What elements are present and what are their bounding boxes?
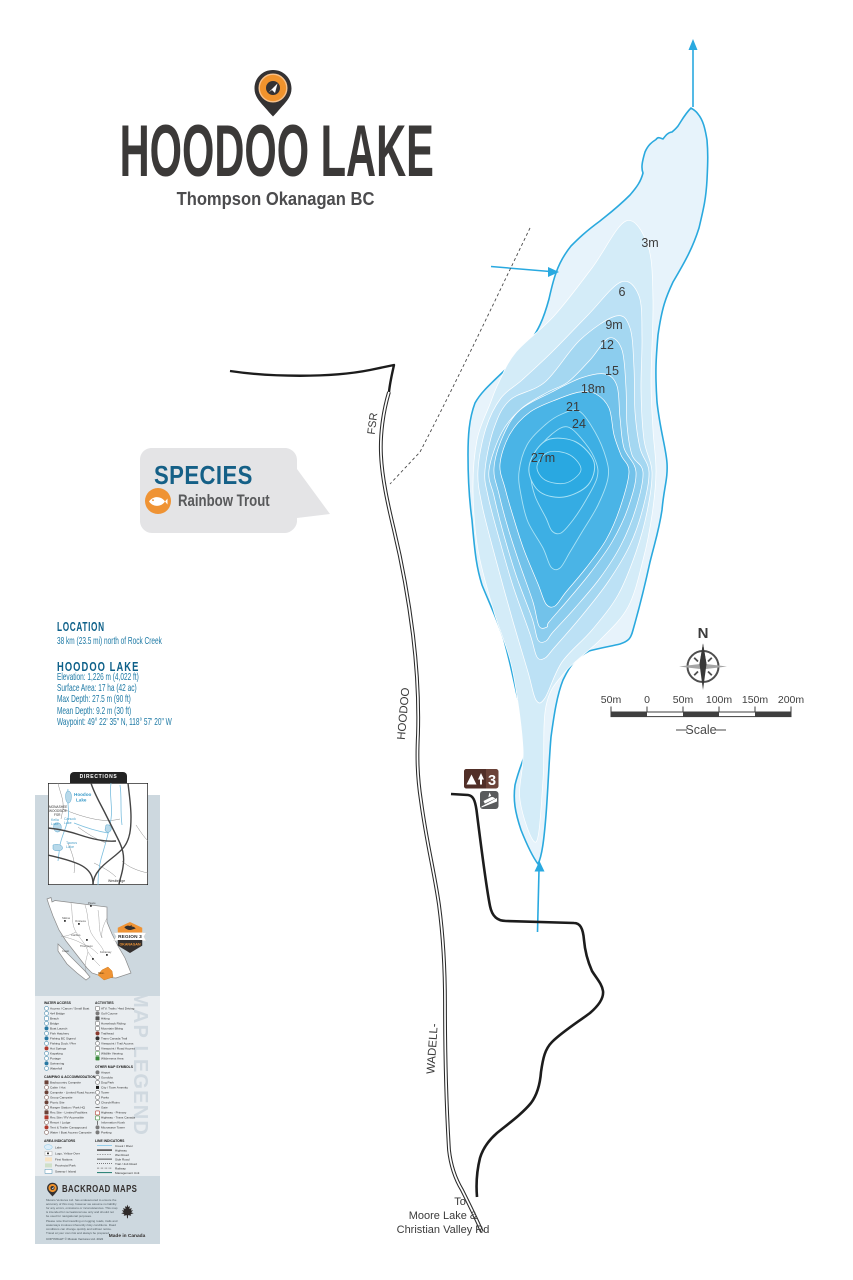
svg-text:Fish Hatchery: Fish Hatchery xyxy=(50,1032,70,1036)
svg-text:0: 0 xyxy=(644,694,650,706)
svg-text:Travel at your own risk and al: Travel at your own risk and always be pr… xyxy=(46,1231,110,1235)
svg-text:12: 12 xyxy=(600,338,614,352)
svg-text:Fishing Dock / Pier: Fishing Dock / Pier xyxy=(50,1042,76,1046)
svg-text:Lake: Lake xyxy=(66,845,74,849)
svg-text:Cabin / Hut: Cabin / Hut xyxy=(50,1086,66,1090)
svg-text:ACTIVITIES: ACTIVITIES xyxy=(95,1001,114,1005)
svg-text:21: 21 xyxy=(566,400,580,414)
svg-text:Wildlife Viewing: Wildlife Viewing xyxy=(101,1052,123,1056)
svg-text:24: 24 xyxy=(572,417,586,431)
svg-text:Beach: Beach xyxy=(50,1017,59,1021)
svg-text:Made in Canada: Made in Canada xyxy=(109,1233,146,1239)
svg-text:Viewpoint / Trail Access: Viewpoint / Trail Access xyxy=(101,1042,134,1046)
svg-text:18m: 18m xyxy=(581,382,605,396)
svg-text:Christian Valley Rd: Christian Valley Rd xyxy=(397,1224,490,1236)
svg-text:WATER ACCESS: WATER ACCESS xyxy=(44,1001,72,1005)
svg-text:CAMPING & ACCOMMODATIONS: CAMPING & ACCOMMODATIONS xyxy=(44,1075,98,1079)
svg-text:HOODOO: HOODOO xyxy=(396,687,413,740)
svg-text:COPYRIGHT © Mussio Ventures Lt: COPYRIGHT © Mussio Ventures Ltd. 2022 xyxy=(46,1237,104,1241)
svg-text:Golf Course: Golf Course xyxy=(101,1012,118,1016)
svg-text:Water / Boat Access Campsite: Water / Boat Access Campsite xyxy=(50,1131,92,1135)
svg-text:Westbridge: Westbridge xyxy=(108,879,125,883)
svg-text:Group Campsite: Group Campsite xyxy=(50,1096,73,1100)
svg-text:Moore Lake &: Moore Lake & xyxy=(409,1210,478,1222)
svg-text:OTHER MAP SYMBOLS: OTHER MAP SYMBOLS xyxy=(95,1065,134,1069)
svg-text:Picnic Site: Picnic Site xyxy=(50,1101,65,1105)
svg-text:Parking: Parking xyxy=(101,1131,112,1135)
svg-text:Cariboo: Cariboo xyxy=(71,933,81,937)
svg-text:Waterfall: Waterfall xyxy=(50,1067,62,1071)
svg-text:Viewpoint / Road Access: Viewpoint / Road Access xyxy=(101,1047,135,1051)
svg-text:Fishing BC Signed: Fishing BC Signed xyxy=(50,1037,76,1041)
svg-text:Railway: Railway xyxy=(115,1166,126,1170)
svg-text:Wet Road: Wet Road xyxy=(115,1153,129,1157)
svg-text:Hiking: Hiking xyxy=(101,1017,110,1021)
svg-text:Lake: Lake xyxy=(55,1146,62,1150)
svg-text:N: N xyxy=(698,625,709,642)
svg-text:Highway - Primary: Highway - Primary xyxy=(101,1111,127,1115)
svg-text:First Nations: First Nations xyxy=(55,1158,73,1162)
svg-text:Resort / Lodge: Resort / Lodge xyxy=(50,1121,71,1125)
svg-text:Scale: Scale xyxy=(685,723,716,737)
svg-text:Kayaking: Kayaking xyxy=(50,1052,63,1056)
svg-text:50m: 50m xyxy=(673,694,694,706)
svg-text:9m: 9m xyxy=(605,318,622,332)
svg-text:Rec Site / RV Accessible: Rec Site / RV Accessible xyxy=(50,1116,84,1120)
svg-text:Peace: Peace xyxy=(88,901,96,905)
svg-text:WADELL-: WADELL- xyxy=(425,1023,441,1075)
svg-text:Side Road: Side Road xyxy=(115,1157,130,1161)
svg-text:Parks: Parks xyxy=(101,1096,109,1100)
svg-text:Lake: Lake xyxy=(64,821,72,825)
svg-text:Mountain Biking: Mountain Biking xyxy=(101,1027,123,1031)
svg-text:Boat Launch: Boat Launch xyxy=(50,1027,68,1031)
svg-text:4x4 Bridge: 4x4 Bridge xyxy=(50,1012,65,1016)
svg-text:Gate: Gate xyxy=(101,1106,108,1110)
svg-text:Tent & Trailer Campground: Tent & Trailer Campground xyxy=(50,1126,87,1130)
svg-text:200m: 200m xyxy=(778,694,805,706)
svg-text:Omineca: Omineca xyxy=(75,919,86,923)
svg-text:LINE INDICATORS: LINE INDICATORS xyxy=(95,1139,125,1143)
svg-text:Backcountry Campsite: Backcountry Campsite xyxy=(50,1081,81,1085)
svg-text:Airport: Airport xyxy=(101,1071,110,1075)
svg-text:Trailhead: Trailhead xyxy=(101,1032,114,1036)
svg-text:Coast: Coast xyxy=(62,949,69,953)
svg-text:3m: 3m xyxy=(641,236,658,250)
svg-text:Gondola: Gondola xyxy=(101,1076,113,1080)
svg-text:150m: 150m xyxy=(742,694,769,706)
svg-text:Church/Ruins: Church/Ruins xyxy=(101,1101,120,1105)
svg-text:City / Town Amenity: City / Town Amenity xyxy=(101,1086,128,1090)
svg-text:be used for navigational purpo: be used for navigational purposes. xyxy=(46,1214,92,1218)
svg-text:Creek / River: Creek / River xyxy=(115,1144,133,1148)
svg-text:Horseback Riding: Horseback Riding xyxy=(101,1022,126,1026)
svg-text:Hot Springs: Hot Springs xyxy=(50,1047,67,1051)
svg-text:Kootenay: Kootenay xyxy=(100,950,112,954)
svg-text:Trail / 4x4 Road: Trail / 4x4 Road xyxy=(115,1162,137,1166)
svg-text:Okan.: Okan. xyxy=(98,973,105,975)
svg-text:Hoodoo: Hoodoo xyxy=(74,792,92,797)
svg-text:Highway: Highway xyxy=(115,1148,127,1152)
svg-text:Wilderness Area: Wilderness Area xyxy=(101,1057,124,1061)
svg-text:Lake: Lake xyxy=(76,798,87,803)
svg-text:Dog Park: Dog Park xyxy=(101,1081,114,1085)
svg-text:Microwave Tower: Microwave Tower xyxy=(101,1126,125,1130)
svg-text:AREA INDICATORS: AREA INDICATORS xyxy=(44,1139,76,1143)
svg-text:OKANAGAN: OKANAGAN xyxy=(119,942,140,946)
svg-text:REGION 3: REGION 3 xyxy=(118,934,142,940)
svg-text:Ranger Station / Park HQ: Ranger Station / Park HQ xyxy=(50,1106,86,1110)
svg-text:Lake: Lake xyxy=(51,822,59,826)
svg-text:To: To xyxy=(454,1196,466,1208)
svg-text:Stikine: Stikine xyxy=(62,916,71,920)
svg-text:Portage: Portage xyxy=(50,1057,61,1061)
svg-text:Trans Canada Trail: Trans Canada Trail xyxy=(101,1037,128,1041)
svg-text:Logo, Yellow Over: Logo, Yellow Over xyxy=(55,1152,80,1156)
svg-text:Provincial Park: Provincial Park xyxy=(55,1164,76,1168)
svg-text:3: 3 xyxy=(488,773,496,789)
svg-text:FSR: FSR xyxy=(366,412,381,435)
svg-text:Management Unit: Management Unit xyxy=(115,1171,140,1175)
svg-text:Highway - Trans Canada: Highway - Trans Canada xyxy=(101,1116,135,1120)
svg-text:Swimming: Swimming xyxy=(50,1062,65,1066)
svg-text:Tower: Tower xyxy=(101,1091,109,1095)
svg-text:Swamp / Island: Swamp / Island xyxy=(55,1170,76,1174)
svg-text:Campsite - Limited Road Access: Campsite - Limited Road Access xyxy=(50,1091,95,1095)
svg-text:Information Kiosk: Information Kiosk xyxy=(101,1121,125,1125)
svg-text:FSR: FSR xyxy=(54,813,61,817)
svg-text:100m: 100m xyxy=(706,694,733,706)
svg-text:50m: 50m xyxy=(601,694,622,706)
svg-text:6: 6 xyxy=(619,285,626,299)
svg-text:ATV, Trails / 4wd Driving: ATV, Trails / 4wd Driving xyxy=(101,1007,135,1011)
svg-text:Bridge: Bridge xyxy=(50,1022,59,1026)
svg-text:Access / Canoe / Small Boat: Access / Canoe / Small Boat xyxy=(50,1007,89,1011)
svg-text:Thompson: Thompson xyxy=(80,944,93,948)
svg-text:Rec Site - Limited Facilities: Rec Site - Limited Facilities xyxy=(50,1111,88,1115)
svg-text:15: 15 xyxy=(605,364,619,378)
svg-text:27m: 27m xyxy=(531,451,555,465)
